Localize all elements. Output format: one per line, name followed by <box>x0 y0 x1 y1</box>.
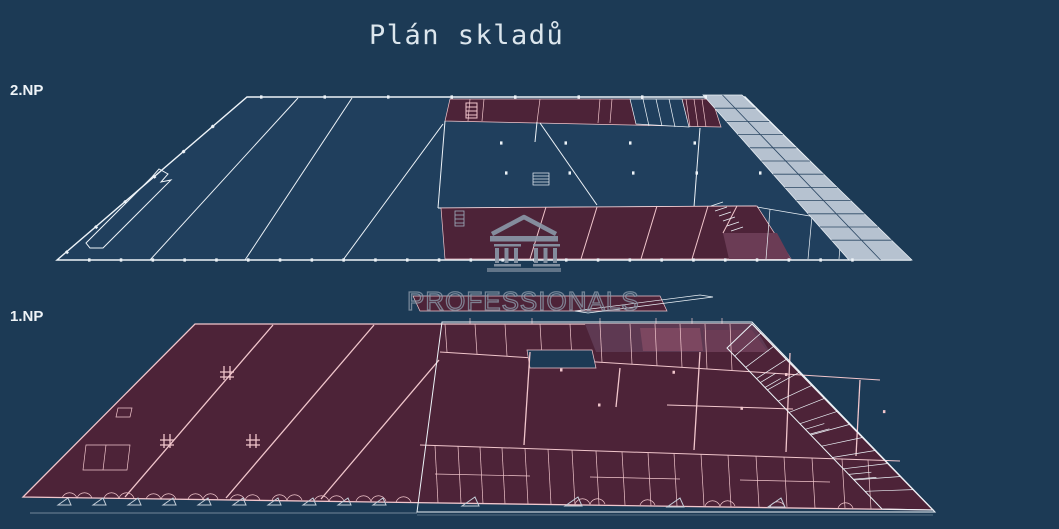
page-title: Plán skladů <box>369 20 564 51</box>
2np-top-strip-white-rooms <box>630 99 689 127</box>
1np-top-edge-ticks <box>470 318 722 324</box>
floor-plan-1np <box>23 295 935 512</box>
warehouse-plan-canvas: PROFESSIONALS Plán skladů 2.NP 1.NP <box>0 0 1059 529</box>
floor-label-2np: 2.NP <box>10 82 43 99</box>
plans-graphic <box>0 0 1059 529</box>
watermark-text: PROFESSIONALS <box>407 288 640 314</box>
1np-outline <box>23 324 933 510</box>
1np-void-opening <box>527 350 596 368</box>
floor-label-1np: 1.NP <box>10 308 43 325</box>
2np-bottom-strip <box>441 202 791 259</box>
floor-plan-2np <box>57 95 912 260</box>
